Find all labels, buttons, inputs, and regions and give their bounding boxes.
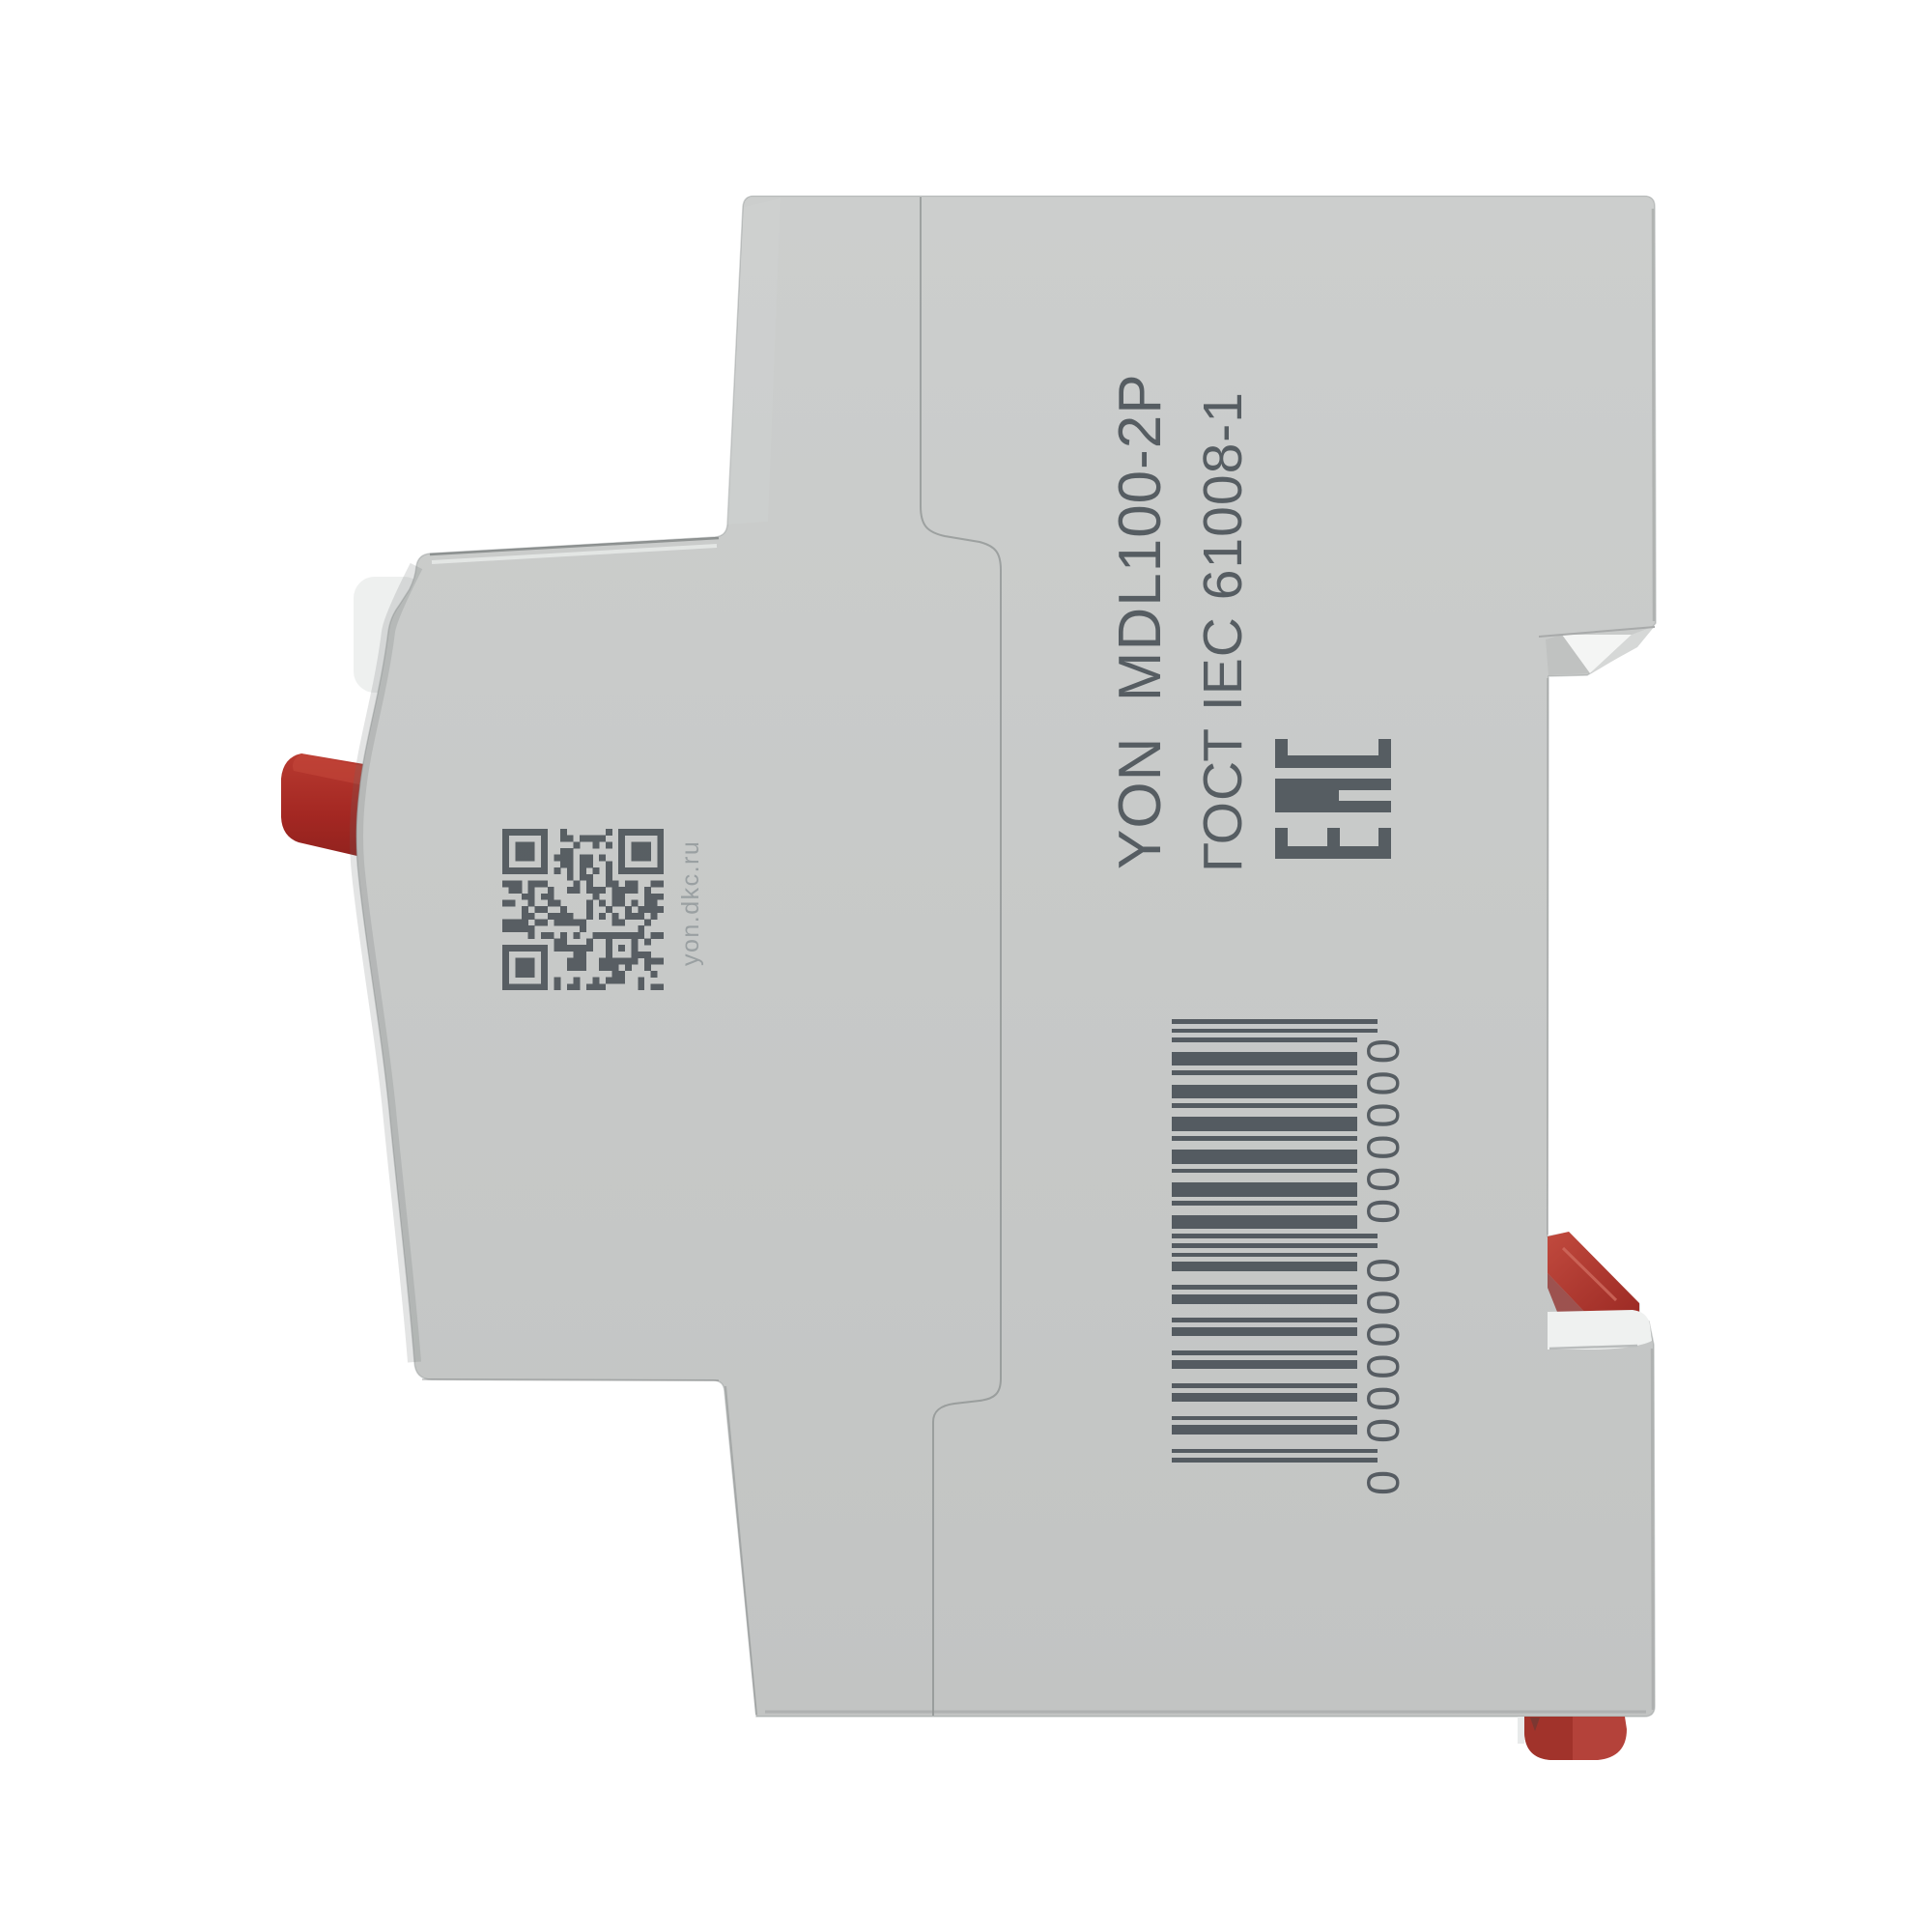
qr-caption-url: yon.dkc.ru: [679, 831, 703, 966]
barcode-bar: [1172, 1262, 1357, 1271]
barcode-bar: [1172, 1150, 1357, 1164]
barcode-bar: [1172, 1070, 1357, 1075]
barcode-digits-left: 000000: [1359, 1254, 1407, 1443]
barcode-bar: [1172, 1350, 1357, 1355]
bottom-clip-red: [1518, 1717, 1627, 1760]
product-photo: YON MDL100-2P ГОСТ IEC 61008-1 yon.dkc.r…: [0, 0, 1932, 1932]
barcode-bar: [1172, 1285, 1357, 1290]
barcode-bar: [1172, 1449, 1378, 1454]
barcode-bar: [1172, 1393, 1357, 1403]
barcode-bar: [1172, 1019, 1378, 1024]
barcode: 0 000000 000000: [1172, 1014, 1413, 1497]
barcode-bar: [1172, 1318, 1357, 1322]
barcode-bar: [1172, 1037, 1357, 1042]
barcode-bar: [1172, 1201, 1357, 1206]
barcode-bar: [1172, 1103, 1357, 1108]
din-ledge: [1548, 1310, 1652, 1350]
eac-mark: [1271, 734, 1397, 864]
barcode-bar: [1172, 1215, 1357, 1230]
model-number-text: YON MDL100-2P: [1111, 348, 1171, 869]
din-clip-red: [1548, 1232, 1639, 1317]
qr-code: [502, 829, 664, 990]
barcode-bar: [1172, 1243, 1378, 1248]
barcode-bar: [1172, 1117, 1357, 1131]
barcode-bar: [1172, 1029, 1378, 1034]
standard-text: ГОСТ IEC 61008-1: [1196, 293, 1251, 872]
barcode-bar: [1172, 1425, 1357, 1435]
barcode-bar: [1172, 1416, 1357, 1421]
barcode-bar: [1172, 1383, 1357, 1388]
barcode-bar: [1172, 1458, 1378, 1463]
barcode-bar: [1172, 1253, 1357, 1258]
breaker-side-view: [0, 0, 1932, 1932]
barcode-bar: [1172, 1052, 1357, 1066]
barcode-bar: [1172, 1327, 1357, 1337]
barcode-bar: [1172, 1360, 1357, 1370]
barcode-bar: [1172, 1085, 1357, 1099]
barcode-digit-lead: 0: [1359, 1470, 1407, 1495]
barcode-bar: [1172, 1234, 1378, 1238]
barcode-bar: [1172, 1136, 1357, 1141]
barcode-bar: [1172, 1169, 1357, 1174]
barcode-digits-right: 000000: [1359, 1035, 1407, 1224]
barcode-bar: [1172, 1182, 1357, 1197]
barcode-bar: [1172, 1294, 1357, 1304]
